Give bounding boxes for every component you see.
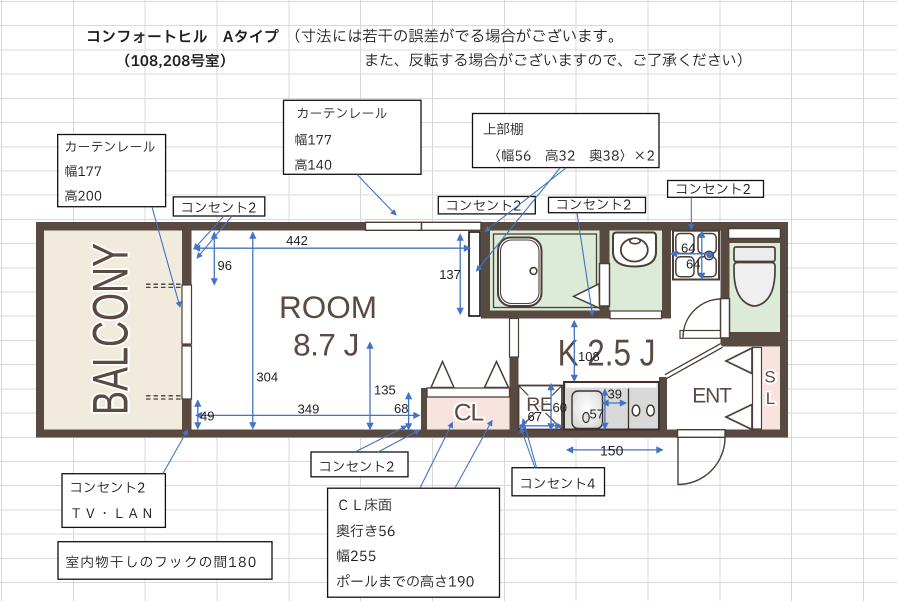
svg-text:K 2.5 J: K 2.5 J xyxy=(558,333,656,374)
svg-text:CL: CL xyxy=(454,400,484,427)
svg-text:ENT: ENT xyxy=(692,385,732,408)
svg-text:150: 150 xyxy=(600,443,624,459)
svg-text:64: 64 xyxy=(686,257,700,272)
svg-text:304: 304 xyxy=(256,370,278,385)
svg-text:ROOM: ROOM xyxy=(279,289,377,325)
svg-text:S: S xyxy=(764,368,775,387)
svg-text:137: 137 xyxy=(439,267,461,282)
svg-text:96: 96 xyxy=(218,258,232,273)
svg-text:49: 49 xyxy=(200,409,214,424)
svg-text:BALCONY: BALCONY xyxy=(84,243,139,415)
svg-text:68: 68 xyxy=(394,401,408,416)
svg-text:L: L xyxy=(766,389,775,408)
svg-text:60: 60 xyxy=(553,400,567,415)
svg-text:39: 39 xyxy=(608,387,622,402)
svg-text:108: 108 xyxy=(578,349,600,364)
svg-text:67: 67 xyxy=(528,409,542,424)
svg-text:57: 57 xyxy=(590,407,604,422)
svg-text:442: 442 xyxy=(286,233,308,248)
svg-text:8.7 J: 8.7 J xyxy=(293,327,359,363)
svg-text:135: 135 xyxy=(374,383,396,398)
svg-text:64: 64 xyxy=(681,241,695,256)
svg-text:349: 349 xyxy=(298,402,320,417)
